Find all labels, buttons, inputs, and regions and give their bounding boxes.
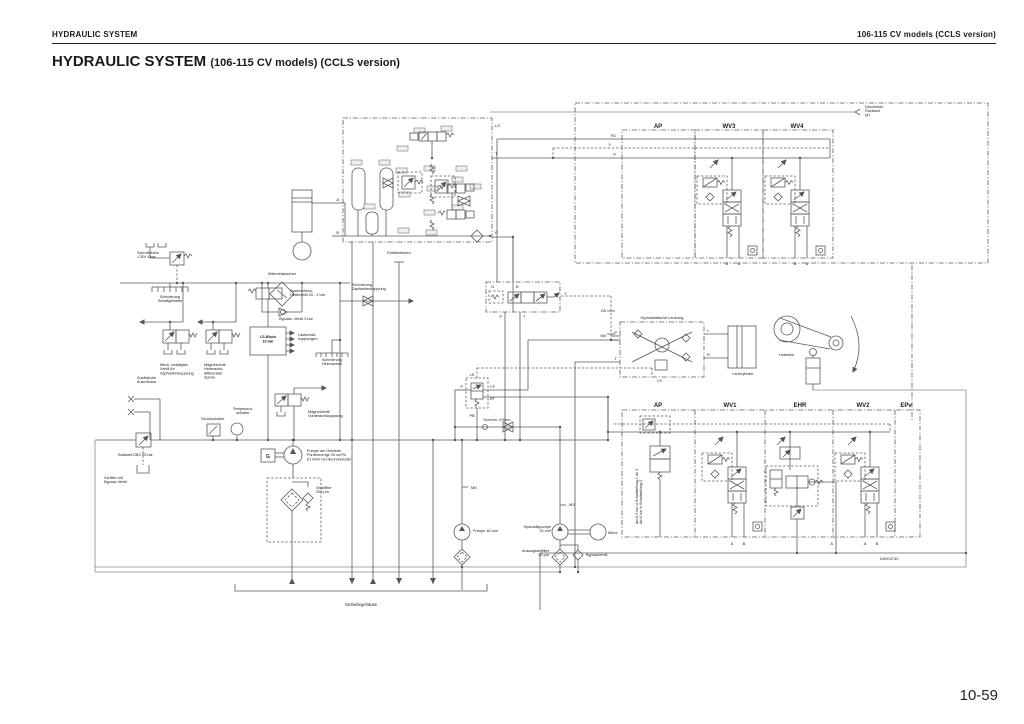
priority-valve <box>455 340 652 440</box>
label-t-valveblock: T <box>495 151 498 156</box>
label-y-mittelblock: Y <box>564 292 567 296</box>
label-y-port: Y <box>608 142 611 147</box>
label-druckschalter: Druckschalter <box>201 417 225 421</box>
label-p-lenkung: P <box>614 330 617 335</box>
gearbox-sump <box>235 242 487 591</box>
label-t-mittelblock: T <box>523 315 526 319</box>
label-wv2: WV2 <box>856 403 870 409</box>
label-ls-lenkung: LS <box>657 378 662 383</box>
label-b-wv3: B <box>738 261 741 266</box>
label-a-wv1: A <box>731 541 734 546</box>
label-mech-ventil-zapfwelle: Mech. betätigtesVentil fürZapfwellenkupp… <box>160 363 194 375</box>
label-a-wv2: A <box>864 541 867 546</box>
label-grobfilter: Grobfilter200 μm <box>316 486 332 494</box>
label-lastschalt-kupplungen: Lastschalt-kupplungen <box>298 333 318 341</box>
label-wv3: WV3 <box>722 124 736 130</box>
label-n-mittelblock: N <box>491 285 494 289</box>
label-p-valveblock: P <box>495 230 498 235</box>
label-ap-bottom: AP <box>654 403 662 409</box>
label-ls-block-text: LS-Block10 bar <box>260 335 277 343</box>
return-lines <box>95 390 966 572</box>
label-magnetventil-hinterachs: MagnetventilHinterachs-differential-Sper… <box>204 363 226 380</box>
clutch-valves <box>140 283 326 440</box>
label-bypass-ventil-3bar: Bypass- Ventil 3 bar <box>279 317 314 321</box>
switches-and-ports <box>128 396 243 473</box>
label-b-wv1: B <box>743 541 746 546</box>
label-ls-priority: LS <box>470 373 475 377</box>
label-a-ehr: A <box>830 541 833 546</box>
label-m4: M4 <box>600 333 606 338</box>
label-b-valveblock: B <box>336 230 339 235</box>
label-epv: EPv <box>900 403 912 409</box>
supply-lines <box>95 397 608 440</box>
label-schmierung-zapfwellenkupplung: SchmierungZapfwellenkupplung <box>352 283 386 291</box>
label-zusaetzliche-anschluesse: ZusätzlicheAnschlüsse <box>137 376 156 384</box>
label-a-wv4: A <box>794 261 797 266</box>
label-drawing-number: D0004740 <box>880 556 899 561</box>
label-schmierung-schaltgetriebe: SchmierungSchaltgetriebe <box>158 295 182 303</box>
label-delta-p-note: Δp=0,4 bar in Schaltstellung 1 od. 2Δp=0… <box>635 469 643 524</box>
label-pb-priority: PB <box>469 414 475 418</box>
label-d5: D5 <box>601 308 607 313</box>
hydraulic-schematic: DruckloserRücklaufM7APWV3WV4R1YPABABLSTP… <box>0 0 1024 724</box>
top-distribution-lines <box>490 109 860 282</box>
label-ansaugsiebfilter: Ansaugsiebfilter25 μm <box>522 549 550 557</box>
label-schmierung-hinterachse: SchmierungHinterachse <box>322 358 342 366</box>
steering-unit <box>575 322 756 567</box>
rear-remote-valve-cluster <box>575 103 988 420</box>
transmission-valve-block <box>332 118 492 242</box>
label-getriebegehaeuse: Getriebegehäuse <box>345 602 378 607</box>
label-einfuellstutzen: Einfüllstutzen <box>387 250 411 255</box>
label-m3: M3 <box>569 502 575 507</box>
label-hydraulikpumpe: Hydraulikpumpe32 cm³ <box>524 525 552 533</box>
mid-valve-block <box>486 237 615 440</box>
label-b-wv2: B <box>876 541 879 546</box>
label-magnetventil-vorderachs: MagnetventilVorderachskupplung <box>308 410 343 418</box>
label-a-wv3: A <box>726 261 729 266</box>
label-durchmesser: Durchm. 0,5mm <box>483 418 510 422</box>
label-vorfilter: Vorfilter mitBypass-Ventil <box>104 476 127 484</box>
label-hydrostatische-lenkung: Hydrostatische Lenkung <box>641 315 684 320</box>
label-m6: M6 <box>471 485 477 490</box>
label-drucklose-ruecklauf: DruckloserRücklaufM7 <box>865 105 884 117</box>
manual-page: HYDRAULIC SYSTEM 106-115 CV models (CCLS… <box>0 0 1024 724</box>
label-a-valveblock: A <box>336 197 339 202</box>
label-t-lenkung: T <box>615 356 618 361</box>
label-systemdruck-halteventil: Systemdruck-Halteventil 20 - 2 bar <box>290 289 326 297</box>
label-temperatur-schalter: Temperatur-schalter <box>233 407 254 415</box>
label-ap-top: AP <box>654 124 662 130</box>
label-ls-valveblock: LS <box>495 123 500 128</box>
page-number: 10-59 <box>960 687 998 704</box>
label-ehr: EHR <box>794 403 807 409</box>
label-r1-port: R1 <box>611 133 617 138</box>
label-schmierkreis-cbv: Schmierkreis-CBV 4 bar <box>137 251 159 259</box>
label-pumpe-am-getriebe: Pumpe am GetriebeFördermenge 25 cm³/U61 … <box>307 449 351 461</box>
junction-dots <box>169 157 967 573</box>
label-b-mittelblock: B <box>516 285 519 289</box>
label-bypassventil: Bypassventil <box>586 553 607 557</box>
label-lenkzylinder: Lenkzylinder <box>732 372 754 376</box>
label-r-lenkung: R <box>707 352 710 357</box>
label-ef-priority: EF <box>490 397 496 401</box>
label-cf-priority: CF <box>490 385 496 389</box>
label-l-lenkung: L <box>707 328 710 333</box>
label-wv1: WV1 <box>723 403 737 409</box>
label-hubwerk: Hubwerk <box>779 353 794 357</box>
clutch-cylinder <box>292 190 332 260</box>
label-motor: Motor <box>608 531 618 535</box>
label-waermetauscher: Wärmetauscher <box>268 271 297 276</box>
label-wv4: WV4 <box>790 124 804 130</box>
label-kaltstart-dbv: Kaltstart-DBV 25 bar <box>118 453 154 457</box>
label-b-wv4: B <box>806 261 809 266</box>
label-g-box-label: G <box>266 454 270 460</box>
label-p-priority: P <box>460 385 463 389</box>
label-pumpe-16ccm: Pumpe 16 ccm <box>473 529 498 533</box>
label-p-mittelblock: P <box>499 315 502 319</box>
label-p-port-top: P <box>613 152 616 157</box>
